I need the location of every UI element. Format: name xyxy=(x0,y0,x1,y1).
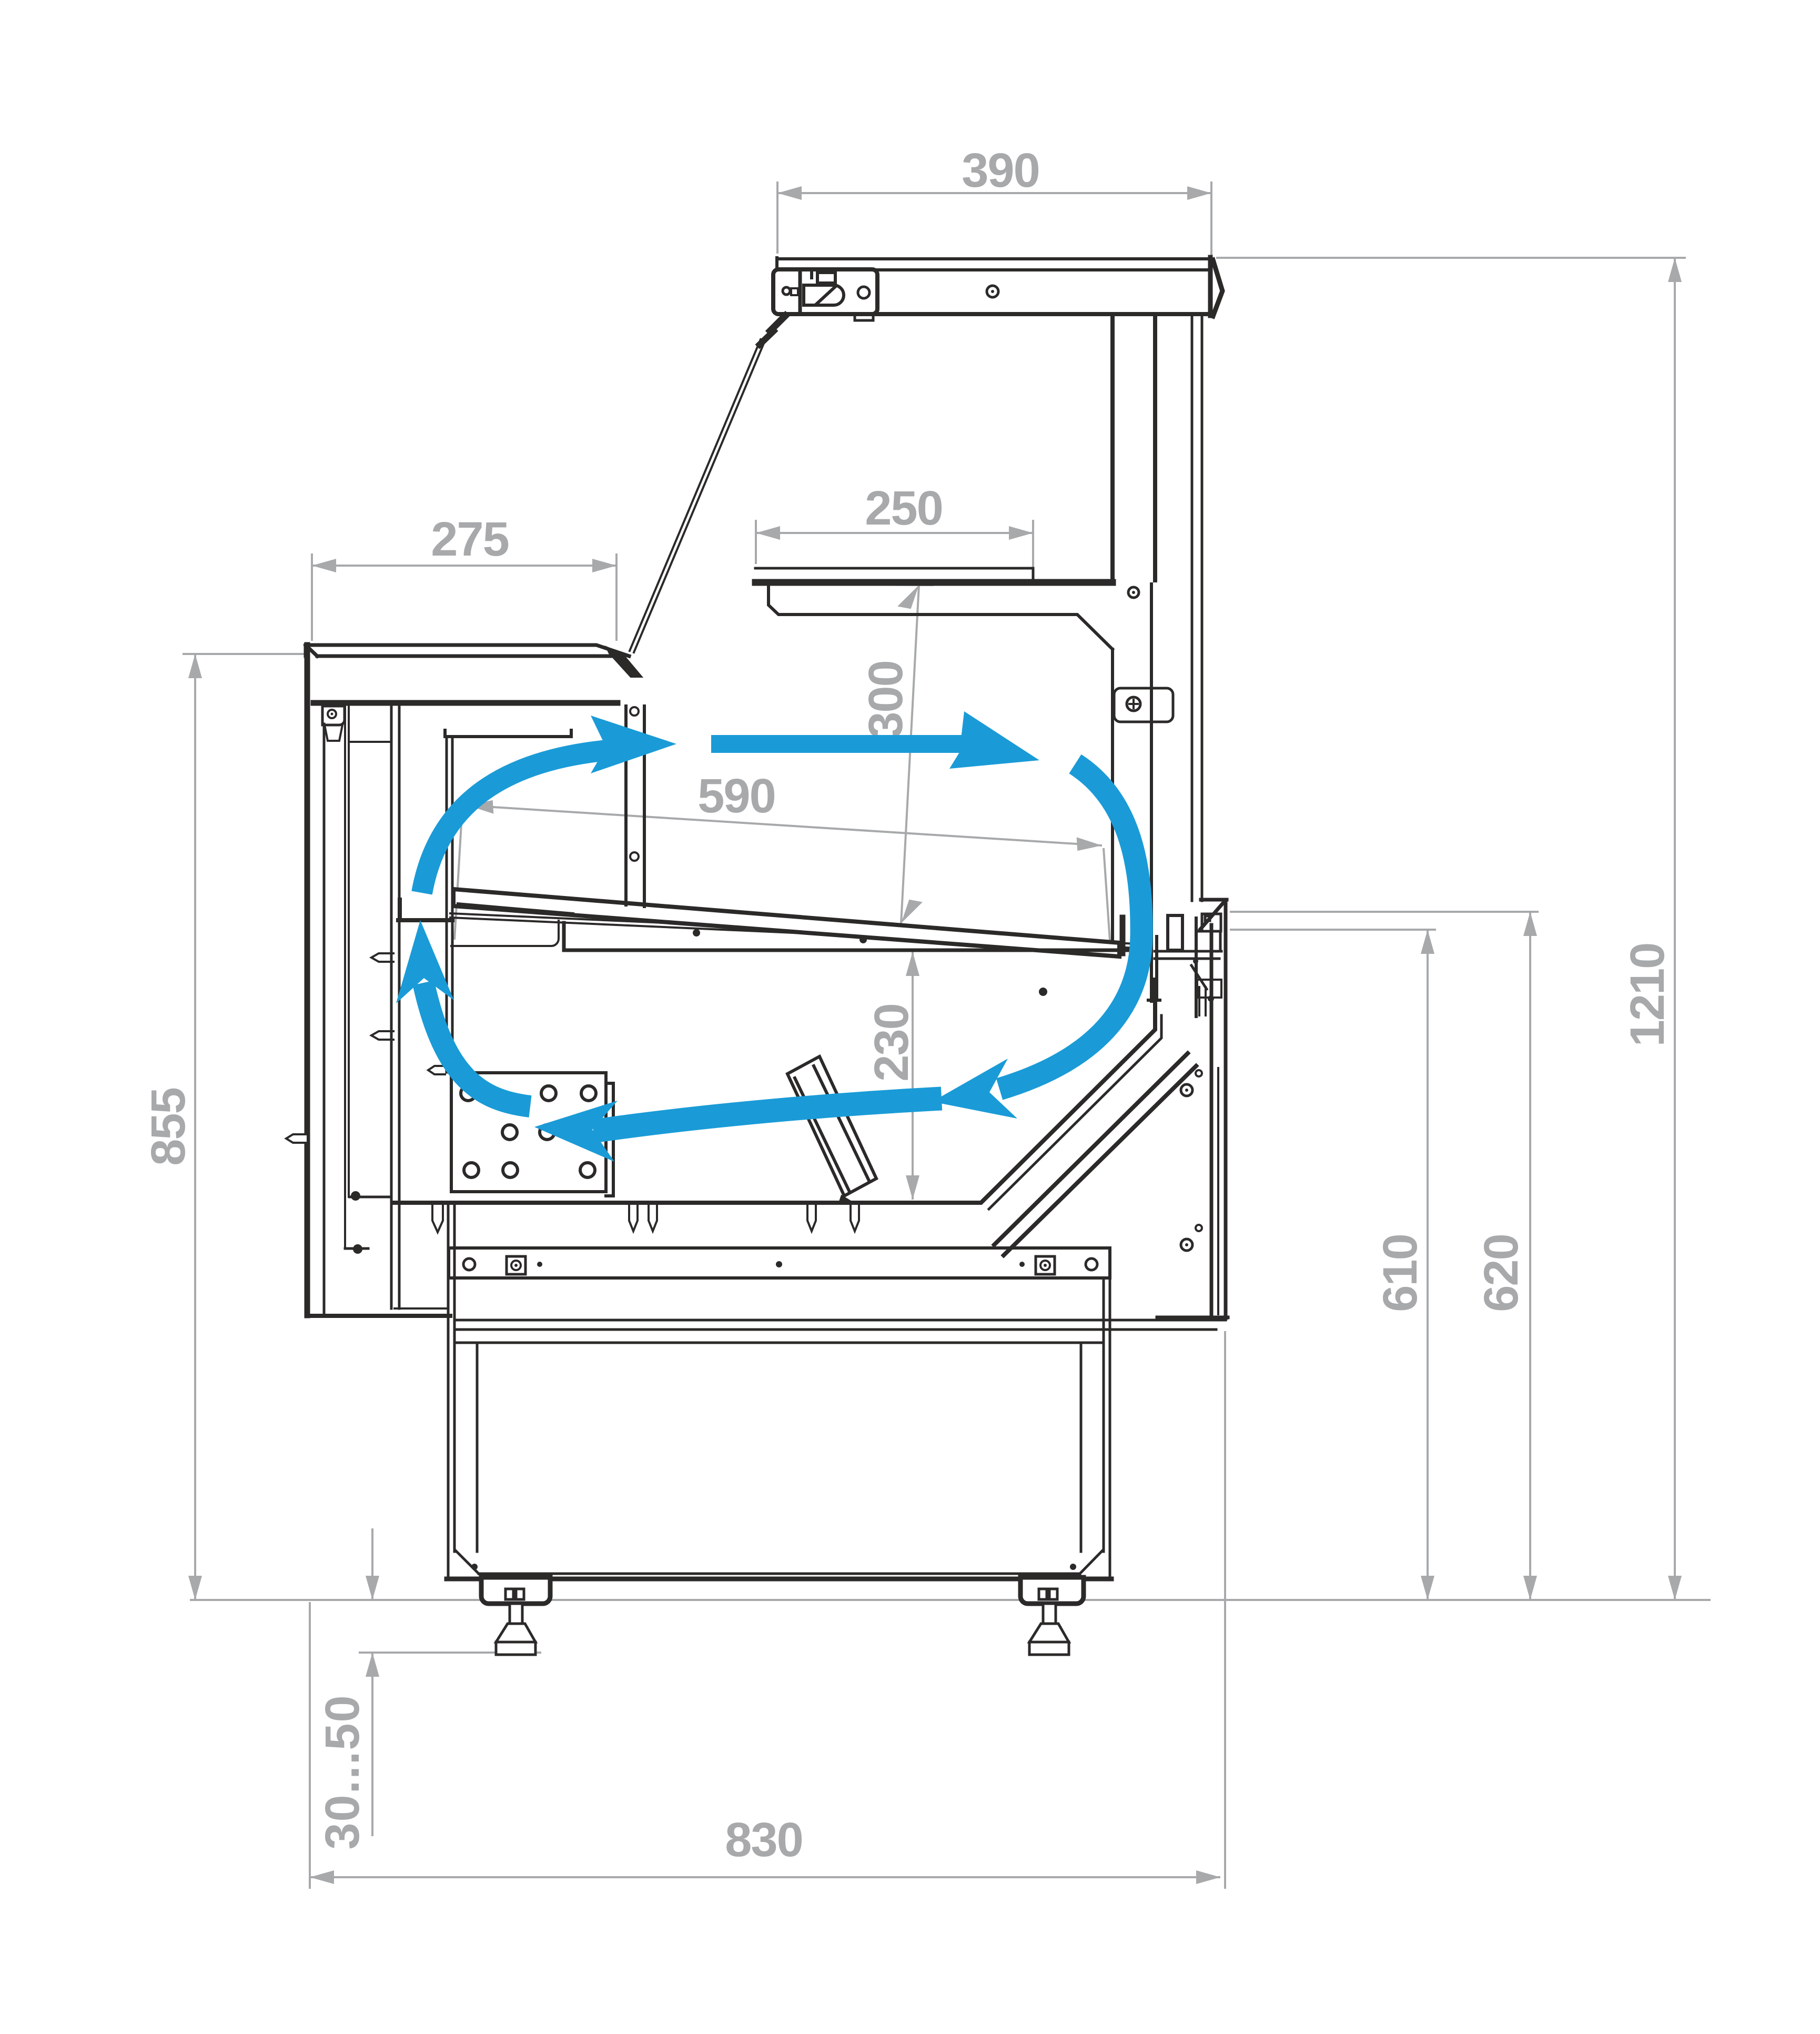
svg-text:610: 610 xyxy=(1373,1234,1427,1312)
svg-text:1210: 1210 xyxy=(1621,943,1674,1047)
svg-text:250: 250 xyxy=(865,481,943,535)
svg-text:300: 300 xyxy=(859,661,913,739)
svg-text:230: 230 xyxy=(865,1004,918,1082)
svg-text:830: 830 xyxy=(725,1813,803,1867)
svg-text:590: 590 xyxy=(697,769,775,823)
svg-text:390: 390 xyxy=(962,144,1039,197)
svg-text:620: 620 xyxy=(1474,1234,1528,1312)
svg-text:30...50: 30...50 xyxy=(316,1694,369,1849)
svg-text:275: 275 xyxy=(431,512,509,566)
svg-text:855: 855 xyxy=(141,1088,195,1166)
